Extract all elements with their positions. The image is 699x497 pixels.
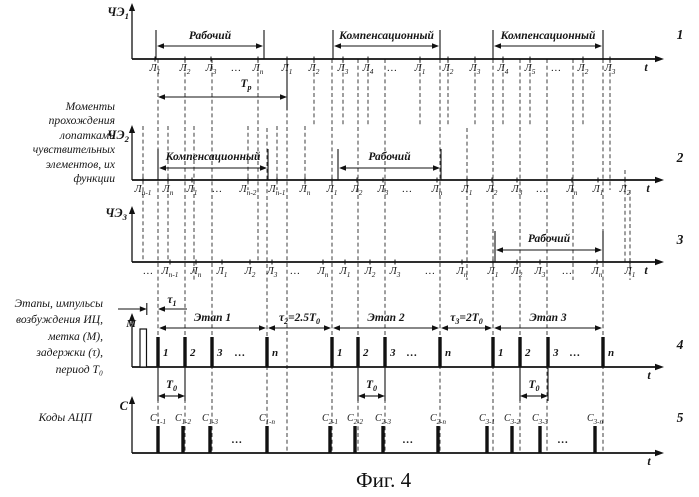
pulse-number: 2 <box>189 347 196 359</box>
time-label: t <box>647 368 651 382</box>
pulse-bar <box>438 337 441 367</box>
pulse-bar <box>265 426 268 453</box>
label-sensor-moments: Моменты прохождения лопатками чувствител… <box>5 100 115 186</box>
tick-label: Л3 <box>205 63 217 76</box>
tick-label: Л2 <box>179 63 191 76</box>
time-axis-arrow <box>655 177 664 184</box>
pulse-bar <box>330 337 333 367</box>
pulse-number: n <box>272 347 278 359</box>
pulse-bar <box>156 337 159 367</box>
row-number: 3 <box>676 232 684 247</box>
tick-label: Л2 <box>511 266 523 279</box>
pulse-number: 3 <box>552 347 559 359</box>
pulse-number: n <box>445 347 451 359</box>
tau1-arrow-head <box>140 306 147 311</box>
pulse-bar <box>485 426 488 453</box>
row-number: 2 <box>676 150 684 165</box>
pulse-number: 2 <box>524 347 531 359</box>
time-axis-arrow <box>655 56 664 63</box>
label-stages-pulses: Этапы, импульсы возбуждения ИЦ, метка (М… <box>3 296 103 378</box>
tick-label: … <box>551 63 560 74</box>
tick-label: Л3 <box>469 63 481 76</box>
span-arrow-head-right <box>260 165 267 170</box>
time-axis-arrow <box>655 364 664 371</box>
tick-label: Л2 <box>486 184 498 197</box>
adc-code-label: С2-n <box>430 413 447 426</box>
tick-label: Л1 <box>624 266 636 279</box>
tick-label: Лn-2 <box>239 184 257 197</box>
tick-label: Л1 <box>326 184 338 197</box>
tick-label: Л4 <box>362 63 374 76</box>
adc-code-label: С2-1 <box>322 413 338 426</box>
tick-label: Лn <box>591 266 603 279</box>
timing-diagram: ЧЭ1t1Л1Л2Л3…ЛnЛ1Л2Л3Л4…Л1Л2Л3Л4Л5…Л2Л3Ра… <box>0 0 699 497</box>
ellipsis: … <box>235 347 246 359</box>
axis-label: ЧЭ1 <box>107 5 129 21</box>
row-number: 5 <box>677 410 684 425</box>
tick-label: Лn <box>431 184 443 197</box>
span-label: Компенсационный <box>500 29 596 42</box>
ellipsis: … <box>407 347 418 359</box>
ellipsis: … <box>570 347 581 359</box>
dim-arrow-head-right <box>178 393 185 398</box>
axis-label: С <box>120 399 129 413</box>
span-label: Компенсационный <box>338 29 434 42</box>
pulse-bar <box>208 426 211 453</box>
span-arrow-head-left <box>268 325 275 330</box>
mark-label: М <box>125 318 137 330</box>
tick-label: Л1 <box>487 266 499 279</box>
time-axis-arrow <box>655 450 664 457</box>
span-label: Этап 1 <box>194 312 231 324</box>
pulse-bar <box>538 426 541 453</box>
tick-label: Л1 <box>339 266 351 279</box>
pulse-bar <box>518 337 521 367</box>
ellipsis: … <box>232 434 243 446</box>
figure-page: ЧЭ1t1Л1Л2Л3…ЛnЛ1Л2Л3Л4…Л1Л2Л3Л4Л5…Л2Л3Ра… <box>0 0 699 497</box>
pulse-number: 1 <box>337 347 343 359</box>
tick-label: Л2 <box>351 184 363 197</box>
span-label: τ3=2Т0 <box>450 312 483 326</box>
adc-code-label: С2-3 <box>375 413 392 426</box>
tick-label: Лn <box>456 266 468 279</box>
pulse-bar <box>353 426 356 453</box>
tick-label: Лn <box>162 184 174 197</box>
dim-arrow-head-left <box>520 393 527 398</box>
pulse-bar <box>491 337 494 367</box>
pulse-bar <box>436 426 439 453</box>
tick-label: Л1 <box>414 63 426 76</box>
adc-code-label: С3-n <box>587 413 604 426</box>
pulse-bar <box>356 337 359 367</box>
dim-arrow-head-left <box>158 393 165 398</box>
span-arrow-head-left <box>441 325 448 330</box>
span-arrow-head-right <box>432 325 439 330</box>
tick-label: Л2 <box>308 63 320 76</box>
span-label: Рабочий <box>528 232 571 245</box>
span-arrow-head-right <box>485 325 492 330</box>
row-number: 1 <box>677 27 684 42</box>
tick-label: … <box>290 266 299 277</box>
dim-arrow-head-right <box>280 94 287 99</box>
span-arrow-head-right <box>595 325 602 330</box>
time-axis-arrow <box>655 259 664 266</box>
tick-label: … <box>536 184 545 195</box>
span-arrow-head-left <box>494 325 501 330</box>
pulse-bar <box>593 426 596 453</box>
label-adc-codes: Коды АЦП <box>2 411 92 424</box>
pulse-bar <box>510 426 513 453</box>
pulse-bar <box>156 426 159 453</box>
pulse-number: 3 <box>389 347 396 359</box>
tick-label: Л3 <box>266 266 278 279</box>
span-label: Компенсационный <box>165 150 261 163</box>
span-label: τ2=2.5Т0 <box>279 312 320 326</box>
tick-label: … <box>212 184 221 195</box>
axis-label: ЧЭ3 <box>105 206 128 222</box>
span-label: Этап 3 <box>529 312 566 324</box>
pulse-bar <box>265 337 268 367</box>
tick-label: Лn <box>252 63 264 76</box>
adc-code-label: С2-2 <box>347 413 364 426</box>
tick-label: Л2 <box>364 266 376 279</box>
span-arrow-head-right <box>259 325 266 330</box>
tick-label: Лn-1 <box>161 266 179 279</box>
pulse-bar <box>546 337 549 367</box>
tick-label: Л3 <box>389 266 401 279</box>
tick-label: Лn <box>190 266 202 279</box>
span-arrow-head-left <box>496 247 503 252</box>
tick-label: Л2 <box>577 63 589 76</box>
tau1-arrow-head <box>158 306 165 311</box>
value-axis-arrow <box>129 206 135 214</box>
tick-label: Л2 <box>442 63 454 76</box>
tick-label: Л2 <box>619 184 631 197</box>
pulse-number: 2 <box>362 347 369 359</box>
tick-label: Л1 <box>149 63 161 76</box>
pulse-bar <box>210 337 213 367</box>
dim-arrow-head-left <box>158 94 165 99</box>
adc-code-label: С3-3 <box>532 413 549 426</box>
value-axis-arrow <box>129 3 135 11</box>
tick-label: Л2 <box>244 266 256 279</box>
span-label: Рабочий <box>368 150 411 163</box>
dim-label: Т0 <box>528 379 539 393</box>
ellipsis: … <box>558 434 569 446</box>
span-arrow-head-left <box>333 325 340 330</box>
pulse-bar <box>181 426 184 453</box>
span-arrow-head-left <box>159 165 166 170</box>
pulse-number: 1 <box>498 347 504 359</box>
span-arrow-head-right <box>256 43 263 48</box>
tick-label: … <box>562 266 571 277</box>
span-arrow-head-left <box>159 325 166 330</box>
pulse-number: 3 <box>216 347 223 359</box>
tick-label: Л1 <box>592 184 604 197</box>
tick-label: Л1 <box>216 266 228 279</box>
span-arrow-head-right <box>432 43 439 48</box>
span-arrow-head-left <box>157 43 164 48</box>
tick-label: Л5 <box>524 63 536 76</box>
tick-label: Лn-1 <box>134 184 152 197</box>
tick-label: … <box>425 266 434 277</box>
pulse-bar <box>383 337 386 367</box>
tick-label: Л1 <box>461 184 473 197</box>
mark-pulse <box>140 329 147 367</box>
time-label: t <box>647 454 651 468</box>
time-label: t <box>646 181 650 195</box>
pulse-bar <box>381 426 384 453</box>
span-arrow-head-right <box>324 325 331 330</box>
adc-code-label: С1-2 <box>175 413 192 426</box>
span-arrow-head-right <box>433 165 440 170</box>
pulse-bar <box>601 337 604 367</box>
tick-label: Лn <box>317 266 329 279</box>
tick-label: Лn <box>299 184 311 197</box>
tick-label: Л4 <box>497 63 509 76</box>
dim-label: Т0 <box>366 379 377 393</box>
tick-label: Л3 <box>511 184 523 197</box>
value-axis-arrow <box>129 396 135 404</box>
dim-label: Т0 <box>166 379 177 393</box>
tick-label: Л3 <box>534 266 546 279</box>
tick-label: Лn <box>566 184 578 197</box>
span-label: Этап 2 <box>367 312 404 324</box>
row-number: 4 <box>676 337 684 352</box>
time-label: t <box>644 60 648 74</box>
tick-label: Лn-1 <box>268 184 286 197</box>
adc-code-label: С3-2 <box>504 413 521 426</box>
tick-label: Л1 <box>186 184 198 197</box>
span-arrow-head-left <box>339 165 346 170</box>
tau1-label: τ1 <box>167 294 176 308</box>
span-arrow-head-left <box>334 43 341 48</box>
ellipsis: … <box>403 434 414 446</box>
tick-label: … <box>387 63 396 74</box>
tick-label: … <box>143 266 152 277</box>
span-arrow-head-left <box>494 43 501 48</box>
tick-label: Л3 <box>377 184 389 197</box>
tick-label: … <box>231 63 240 74</box>
pulse-number: n <box>608 347 614 359</box>
dim-arrow-head-right <box>378 393 385 398</box>
tick-label: … <box>402 184 411 195</box>
value-axis-arrow <box>129 125 135 133</box>
time-label: t <box>644 263 648 277</box>
tick-label: Л3 <box>604 63 616 76</box>
span-label: Рабочий <box>189 29 232 42</box>
pulse-bar <box>328 426 331 453</box>
figure-caption: Фиг. 4 <box>356 468 411 493</box>
tick-label: Л3 <box>337 63 349 76</box>
adc-code-label: С1-3 <box>202 413 219 426</box>
dim-label: Тр <box>240 78 251 92</box>
pulse-number: 1 <box>163 347 169 359</box>
pulse-bar <box>183 337 186 367</box>
span-arrow-head-right <box>595 43 602 48</box>
dim-arrow-head-left <box>358 393 365 398</box>
span-arrow-head-right <box>595 247 602 252</box>
